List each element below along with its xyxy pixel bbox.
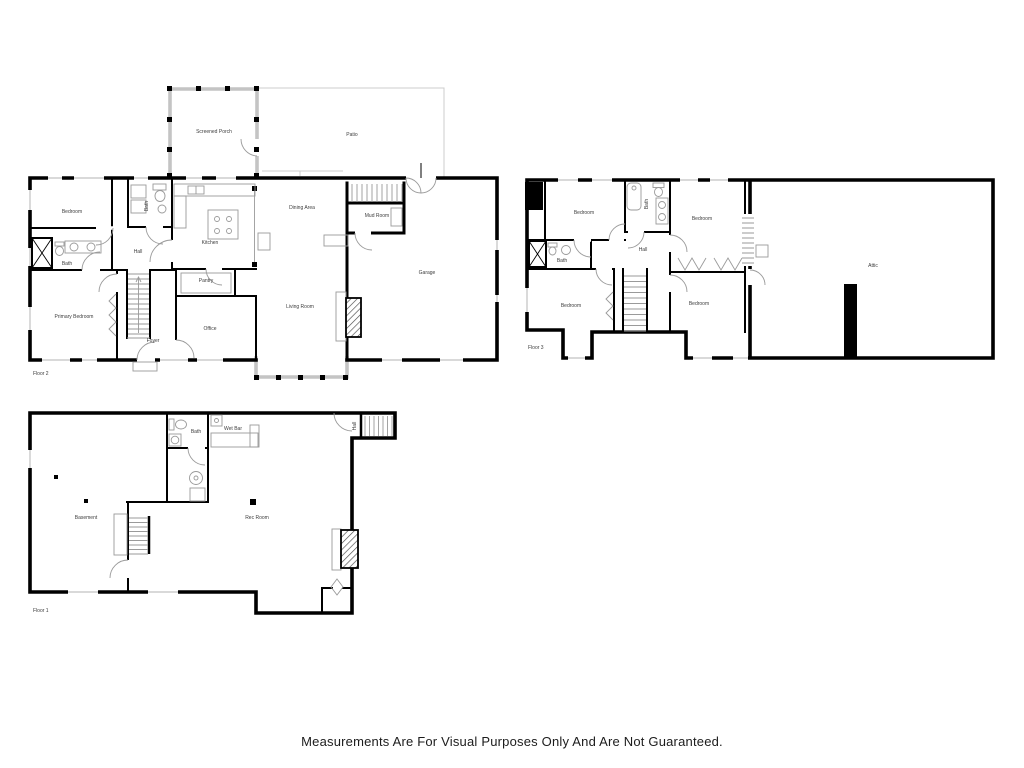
floor1-plan: Basement Bath Wet Bar Rec Room Hall Floo…: [30, 413, 395, 614]
floor1-door-arcs: [110, 413, 352, 578]
room-label-primary-bedroom: Primary Bedroom: [55, 314, 94, 320]
room-label-wet-bar: Wet Bar: [224, 426, 242, 432]
room-label-bedroom-nw: Bedroom: [574, 210, 594, 216]
floor3-plan: Bedroom Bath Bedroom Bath Hall Bedroom B…: [525, 180, 993, 358]
room-label-bath-f1: Bath: [191, 429, 202, 435]
floor3-label: Floor 3: [528, 345, 544, 351]
floor3-closet-bifolds: [606, 258, 742, 320]
living-room-fireplace: [346, 298, 361, 337]
room-label-living-room: Living Room: [286, 304, 314, 310]
linen-closet: [32, 238, 52, 268]
room-label-mud-room: Mud Room: [365, 213, 389, 219]
floor2-plan: Screened Porch Patio Bedroom Bath Kitche…: [30, 86, 497, 380]
room-label-screened-porch: Screened Porch: [196, 129, 232, 135]
room-label-hall-f1: Hall: [352, 422, 358, 431]
attic-chimney: [844, 284, 857, 358]
main-stairs-up: [127, 274, 150, 338]
floor1-room-labels: Basement Bath Wet Bar Rec Room Hall Floo…: [33, 422, 358, 614]
room-label-patio: Patio: [346, 132, 358, 138]
floorplan-image: Screened Porch Patio Bedroom Bath Kitche…: [0, 0, 1024, 768]
floor1-interior-walls: [127, 413, 352, 613]
floor2-label: Floor 2: [33, 371, 49, 377]
floor3-room-labels: Bedroom Bath Bedroom Bath Hall Bedroom B…: [528, 199, 878, 351]
room-label-hall-f3: Hall: [639, 247, 648, 253]
floor3-bath-fixtures: [548, 183, 668, 255]
back-stairs: [352, 184, 402, 202]
kitchen-fixtures: [174, 184, 255, 239]
rec-room-hearth: [332, 529, 341, 570]
room-label-garage: Garage: [419, 270, 436, 276]
room-label-bedroom-se: Bedroom: [689, 301, 709, 307]
room-label-bedroom-f2: Bedroom: [62, 209, 82, 215]
room-label-office: Office: [204, 326, 217, 332]
living-room-deck-wall: [256, 358, 347, 377]
room-label-basement: Basement: [75, 515, 98, 521]
floor1-label: Floor 1: [33, 608, 49, 614]
room-label-rec-room: Rec Room: [245, 515, 269, 521]
room-label-bath-f3: Bath: [557, 258, 568, 264]
room-label-bedroom-ne: Bedroom: [692, 216, 712, 222]
living-room-hearth: [336, 292, 346, 341]
floor3-stairs: [624, 276, 646, 331]
floor1-top-stairs: [365, 416, 392, 436]
rec-room-fireplace: [341, 530, 358, 568]
chimney-block: [525, 182, 543, 210]
room-label-pantry: Pantry: [199, 278, 214, 284]
room-label-kitchen: Kitchen: [202, 240, 219, 246]
room-label-attic: Attic: [868, 263, 878, 269]
room-label-hall-f2: Hall: [134, 249, 143, 255]
floor1-bath-fixtures: [169, 415, 259, 447]
water-heater: [190, 472, 206, 502]
floor1-windows: [30, 450, 178, 592]
floor1-main-stairs: [129, 518, 148, 554]
room-label-foyer: Foyer: [147, 338, 160, 344]
patio-step-line: [262, 171, 343, 176]
room-label-bath-upper-f2: Bath: [144, 201, 150, 212]
room-label-bedroom-sw: Bedroom: [561, 303, 581, 309]
room-label-dining-area: Dining Area: [289, 205, 315, 211]
floor3-linen-closet: [529, 241, 546, 267]
attic-landing-box: [756, 245, 768, 257]
room-label-bath-upper-f3: Bath: [644, 199, 650, 210]
floor1-posts: [54, 475, 256, 505]
disclaimer-text: Measurements Are For Visual Purposes Onl…: [0, 734, 1024, 749]
under-stair-box: [114, 514, 127, 555]
primary-closet-bifold: [109, 294, 116, 336]
room-label-bath-f2: Bath: [62, 261, 73, 267]
